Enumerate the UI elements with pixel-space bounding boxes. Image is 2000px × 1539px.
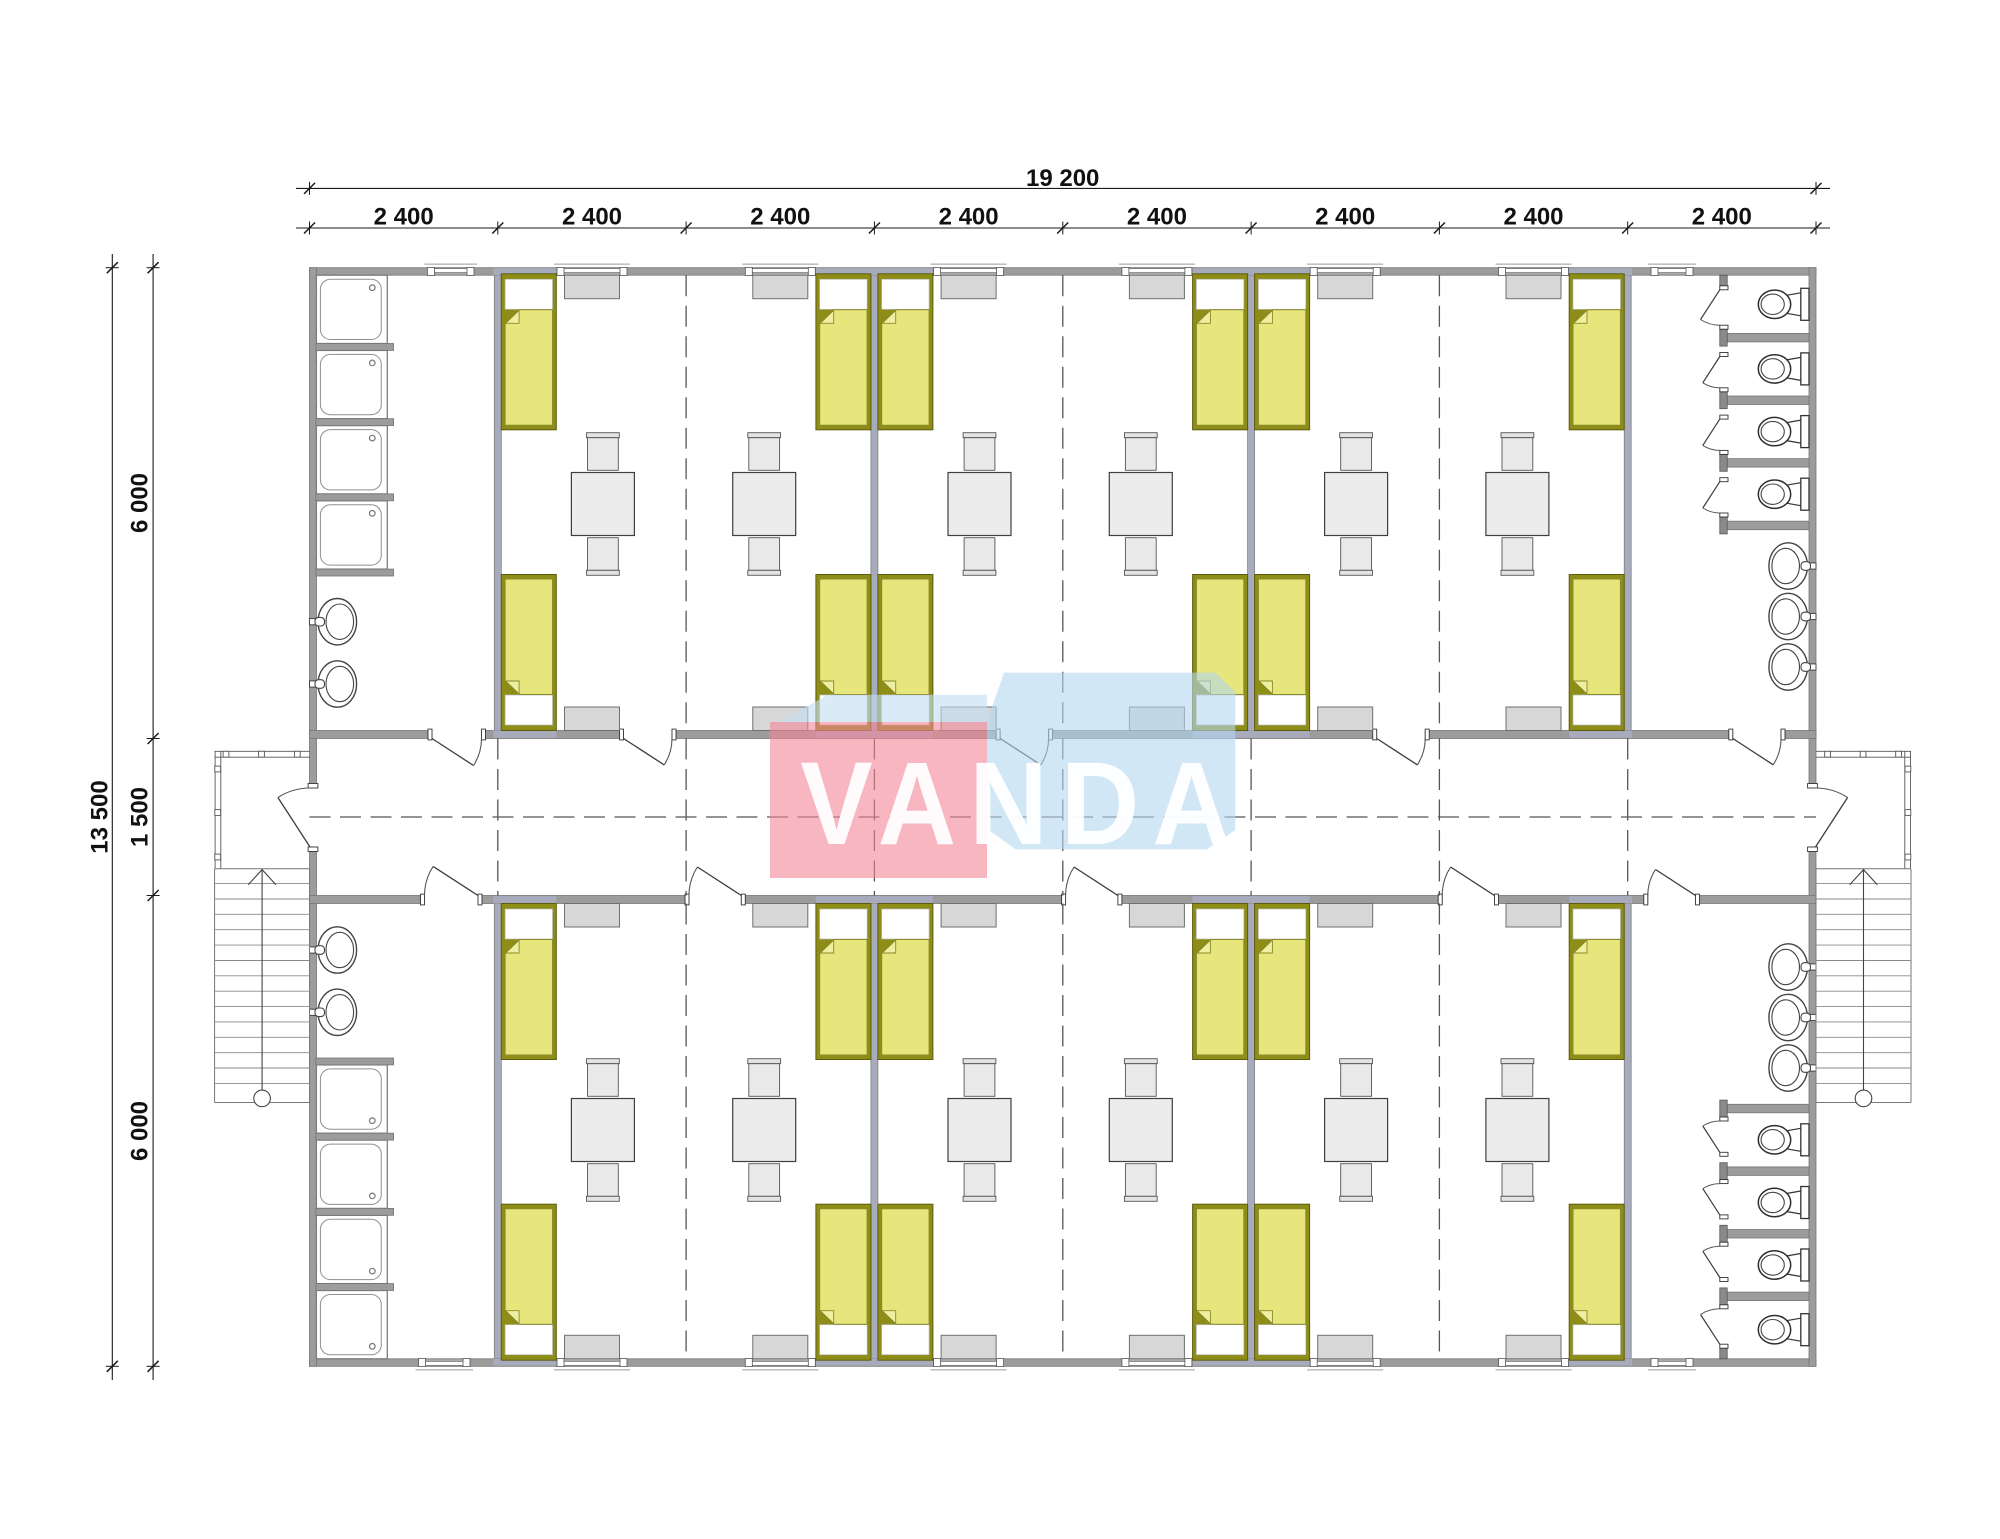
svg-text:6 000: 6 000 [127, 1101, 154, 1161]
svg-text:2 400: 2 400 [1315, 204, 1375, 231]
svg-text:1 500: 1 500 [127, 787, 154, 847]
svg-text:2 400: 2 400 [750, 204, 810, 231]
svg-text:2 400: 2 400 [562, 204, 622, 231]
svg-text:2 400: 2 400 [1127, 204, 1187, 231]
svg-text:2 400: 2 400 [939, 204, 999, 231]
svg-text:19 200: 19 200 [1026, 165, 1099, 192]
svg-text:2 400: 2 400 [1692, 204, 1752, 231]
svg-text:13 500: 13 500 [87, 780, 114, 853]
svg-text:2 400: 2 400 [374, 204, 434, 231]
svg-text:2 400: 2 400 [1503, 204, 1563, 231]
svg-text:6 000: 6 000 [127, 473, 154, 533]
